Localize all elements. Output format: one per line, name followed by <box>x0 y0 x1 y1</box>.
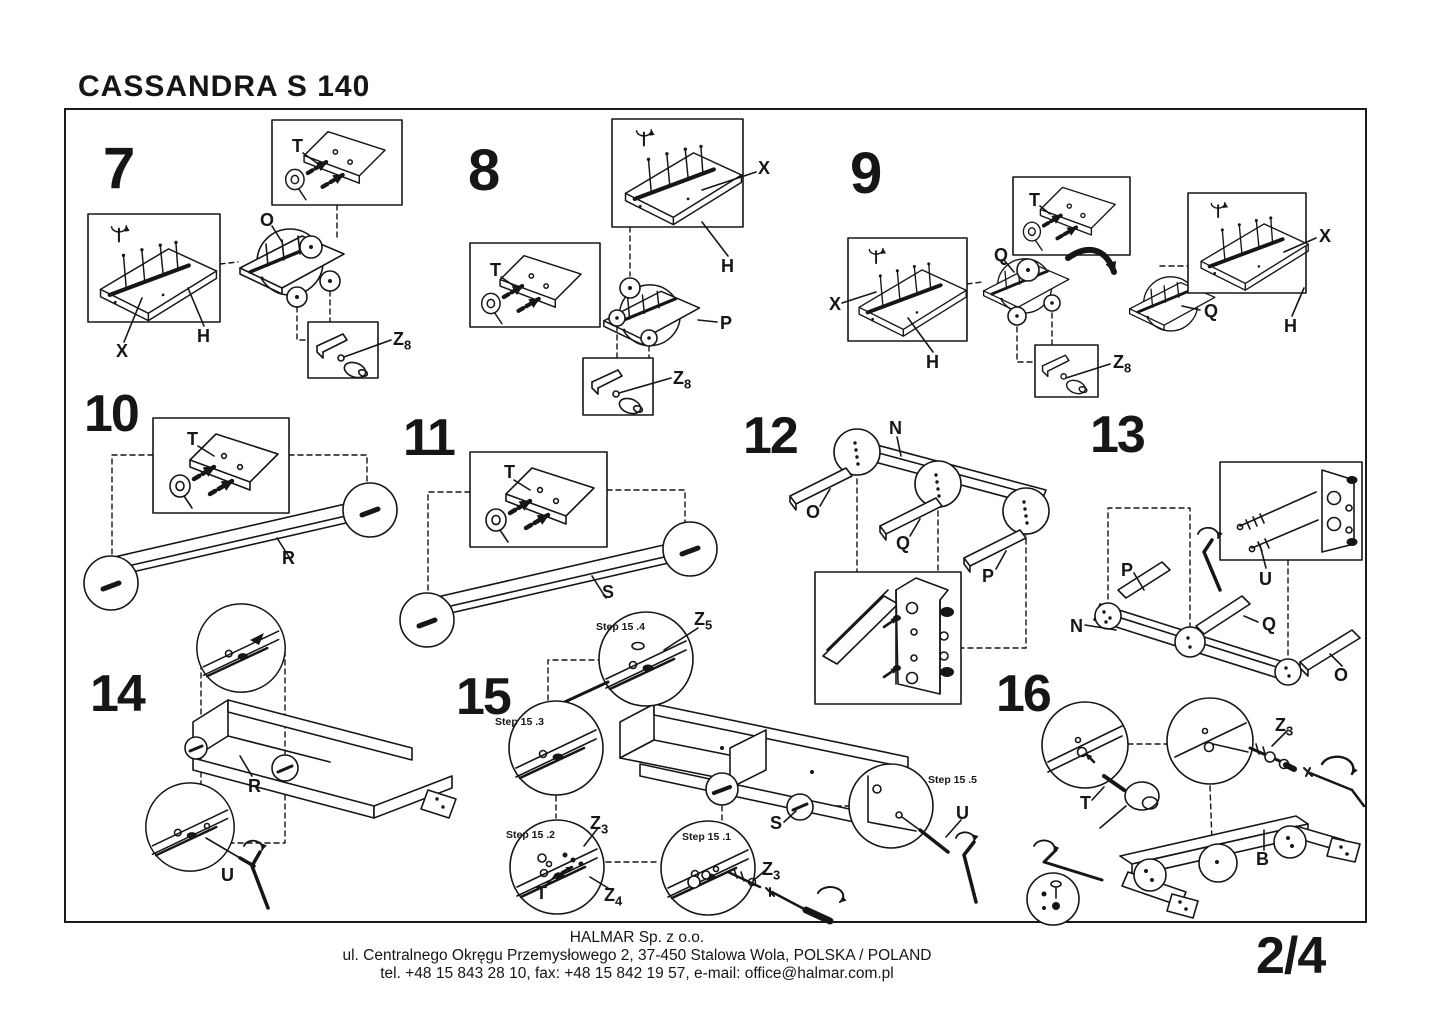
substep-label-15-4: Step 15 .4 <box>596 622 645 633</box>
step-16-art <box>1027 698 1364 925</box>
step-16-number: 16 <box>996 668 1050 720</box>
part-label-s-step11: S <box>602 583 614 601</box>
part-label-x-step7: X <box>116 342 128 360</box>
part-label-q-center-step9: Q <box>994 246 1008 264</box>
step-7-art <box>88 120 402 380</box>
part-label-x-right-step9: X <box>1319 227 1331 245</box>
substep-label-15-5: Step 15 .5 <box>928 775 977 786</box>
step-14-art <box>146 604 456 908</box>
part-label-t-step15: T <box>536 884 547 902</box>
step-9-number: 9 <box>850 145 880 203</box>
part-label-p-step8: P <box>720 314 732 332</box>
part-label-q-right-step9: Q <box>1204 302 1218 320</box>
step-12-number: 12 <box>743 410 797 462</box>
part-label-z8-step9: Z8 <box>1113 353 1131 375</box>
instruction-sheet: CASSANDRA S 140 <box>0 0 1445 1021</box>
part-label-b-step16: B <box>1256 850 1269 868</box>
part-label-t-step11: T <box>504 463 515 481</box>
part-label-z8-step7: Z8 <box>393 330 411 352</box>
step-10-number: 10 <box>84 388 138 440</box>
part-label-u-step14: U <box>221 866 234 884</box>
footer-contact: tel. +48 15 843 28 10, fax: +48 15 842 1… <box>0 965 1274 983</box>
step-14-number: 14 <box>90 668 144 720</box>
part-label-p-step12: P <box>982 567 994 585</box>
part-label-s-step15: S <box>770 814 782 832</box>
part-label-p-step13: P <box>1121 561 1133 579</box>
part-label-n-step12: N <box>889 419 902 437</box>
part-label-z4-step15: Z4 <box>604 886 622 908</box>
step-10-art <box>84 418 397 610</box>
part-label-z3-step15-2: Z3 <box>590 814 608 836</box>
part-label-t-step7: T <box>292 137 303 155</box>
substep-label-15-2: Step 15 .2 <box>506 830 555 841</box>
part-label-q-step12: Q <box>896 534 910 552</box>
step-8-art <box>470 119 756 416</box>
page-number: 2/4 <box>1256 926 1325 986</box>
part-label-o-step12: O <box>806 503 820 521</box>
part-label-q-step13: Q <box>1262 615 1276 633</box>
substep-label-15-1: Step 15 .1 <box>682 832 731 843</box>
footer: HALMAR Sp. z o.o. ul. Centralnego Okręgu… <box>0 929 1274 983</box>
part-label-t-step10: T <box>187 430 198 448</box>
footer-address: ul. Centralnego Okręgu Przemysłowego 2, … <box>0 947 1274 965</box>
part-label-h-step7: H <box>197 327 210 345</box>
part-label-o-step13: O <box>1334 666 1348 684</box>
part-label-t-step9: T <box>1029 191 1040 209</box>
part-label-t-step8: T <box>490 261 501 279</box>
footer-company: HALMAR Sp. z o.o. <box>0 929 1274 947</box>
part-label-x-left-step9: X <box>829 295 841 313</box>
part-label-z3-step15-1: Z3 <box>762 860 780 882</box>
step-7-number: 7 <box>103 140 133 198</box>
step-13-number: 13 <box>1090 409 1144 461</box>
step-9-art <box>842 177 1316 397</box>
part-label-u-step13: U <box>1259 570 1272 588</box>
part-label-x-step8: X <box>758 159 770 177</box>
part-label-z5-step15: Z5 <box>694 610 712 632</box>
step-8-number: 8 <box>468 142 498 200</box>
part-label-h-step8: H <box>721 257 734 275</box>
step-11-number: 11 <box>403 412 454 464</box>
part-label-n-step13: N <box>1070 617 1083 635</box>
part-label-z8-step8: Z8 <box>673 369 691 391</box>
part-label-r-step14: R <box>248 777 261 795</box>
assembly-diagram-artwork <box>0 0 1445 1021</box>
part-label-t-step16: T <box>1080 794 1091 812</box>
part-label-h-left-step9: H <box>926 353 939 371</box>
part-label-r-step10: R <box>282 549 295 567</box>
part-label-o-step7: O <box>260 211 274 229</box>
part-label-u-step15: U <box>956 804 969 822</box>
substep-label-15-3: Step 15 .3 <box>495 717 544 728</box>
step-12-art <box>790 429 1049 704</box>
part-label-z3-step16: Z3 <box>1275 716 1293 738</box>
part-label-h-right-step9: H <box>1284 317 1297 335</box>
